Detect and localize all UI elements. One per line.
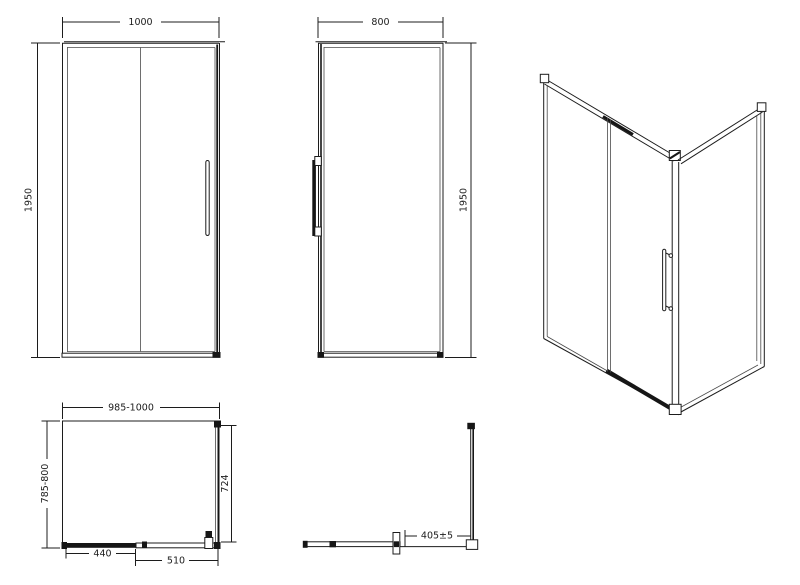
side-height-label: 1950: [459, 188, 470, 212]
side-bottom-rail: [318, 353, 443, 357]
track-opening-dimension: 405±5: [405, 530, 471, 547]
side-view: 800 1950: [312, 16, 476, 358]
track-corner-foot: [466, 540, 477, 550]
side-door-handle: [312, 157, 321, 237]
plan-handle-knob: [206, 531, 213, 538]
plan-outline: [62, 421, 221, 546]
front-view: 1000 1950: [24, 16, 226, 358]
perspective-corner-post: [669, 151, 680, 410]
shower-enclosure-drawing: 1000 1950: [0, 0, 800, 585]
perspective-view: [540, 74, 766, 414]
right-post-cap: [757, 103, 766, 112]
perspective-door-handle: [663, 249, 673, 310]
side-frame: [316, 42, 448, 358]
plan-view: 985-1000 785-800 724 440: [40, 402, 237, 567]
plan-side-panel-label: 724: [220, 474, 231, 492]
plan-side-panel-dimension: 724: [220, 426, 237, 543]
plan-fixed-segment-label: 440: [93, 549, 111, 560]
front-frame: [62, 42, 225, 358]
bottom-track: [607, 371, 680, 414]
plan-width-label: 985-1000: [108, 403, 154, 414]
track-opening-label: 405±5: [421, 531, 453, 542]
left-post-cap: [540, 74, 548, 82]
plan-door-segment-dimension: 510: [136, 549, 219, 567]
track-post-cap: [467, 423, 475, 429]
corner-foot: [669, 404, 681, 414]
front-height-label: 1950: [24, 188, 35, 212]
plan-handle: [205, 538, 213, 549]
side-width-label: 800: [371, 17, 389, 28]
plan-door-segment-label: 510: [167, 556, 185, 567]
perspective-side-panel: [669, 103, 766, 415]
front-width-dimension: 1000: [63, 16, 220, 39]
plan-depth-dimension: 785-800: [40, 421, 60, 548]
plan-corner-post: [214, 421, 221, 428]
front-width-label: 1000: [128, 17, 152, 28]
plan-fixed-segment-dimension: 440: [66, 549, 136, 567]
side-height-dimension: 1950: [445, 43, 477, 358]
front-door-handle: [206, 161, 209, 236]
side-width-dimension: 800: [318, 16, 443, 39]
plan-track: [62, 531, 221, 549]
perspective-front-panel: [540, 74, 679, 413]
front-bottom-rail: [62, 353, 220, 357]
track-rail: [306, 542, 400, 547]
front-height-dimension: 1950: [24, 43, 61, 358]
plan-fixed-panel: [63, 543, 136, 548]
technical-drawing-canvas: 1000 1950: [0, 0, 800, 585]
plan-width-dimension: 985-1000: [63, 402, 220, 420]
plan-depth-label: 785-800: [40, 464, 51, 504]
track-detail-view: 405±5: [303, 423, 478, 554]
